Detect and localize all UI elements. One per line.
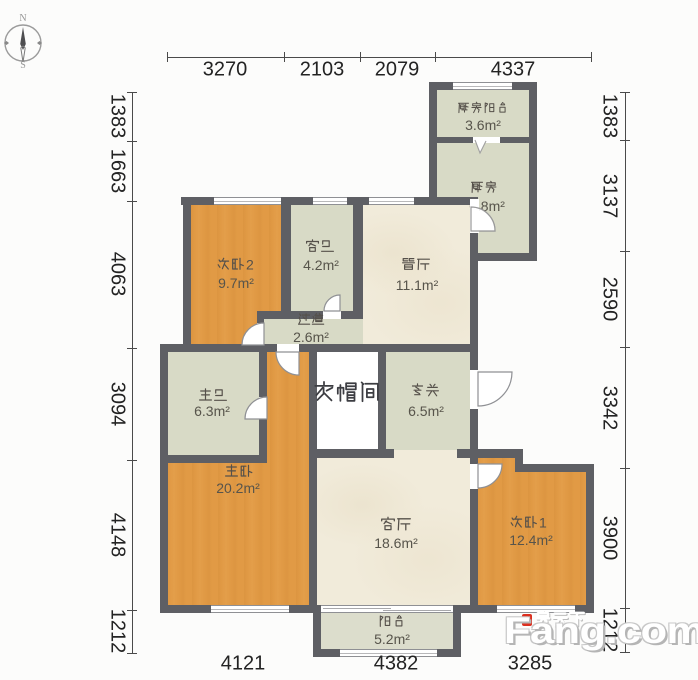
svg-text:N: N [19, 13, 26, 24]
